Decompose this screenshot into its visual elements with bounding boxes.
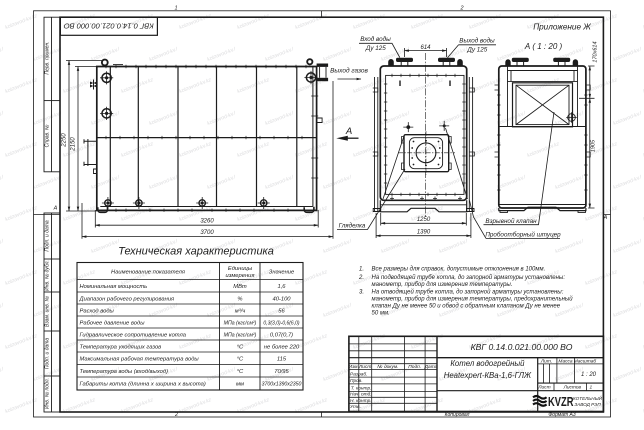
svg-text:Т. контр.: Т. контр. [351,385,372,391]
svg-text:Подп. и дата: Подп. и дата [45,338,51,370]
svg-text:0,07(0,7): 0,07(0,7) [270,332,293,338]
svg-text:Значение: Значение [269,269,295,275]
svg-text:1 : 20: 1 : 20 [581,372,597,378]
svg-text:2: 2 [459,6,463,12]
svg-text:Диапазон рабочего регулировани: Диапазон рабочего регулирования [79,296,175,302]
svg-text:КОТЕЛЬНЫЙ: КОТЕЛЬНЫЙ [573,394,603,401]
svg-text:Гидравлическое сопротивление к: Гидравлическое сопротивление котла [80,332,187,338]
svg-text:1905: 1905 [591,139,597,152]
svg-text:1250: 1250 [417,217,431,223]
svg-text:Взрывной клапан: Взрывной клапан [485,217,537,225]
svg-text:м³/ч: м³/ч [235,308,246,314]
svg-text:манометр, прибор для измерения: манометр, прибор для измерения температу… [372,295,574,302]
svg-text:клапан Ду не менее 50 и обвод: клапан Ду не менее 50 и обвод с обратным… [372,303,561,309]
svg-text:3.: 3. [359,289,364,295]
svg-text:Н. контр.: Н. контр. [350,398,372,404]
svg-text:На отводящей трубе котла, до з: На отводящей трубе котла, до запорной ар… [372,288,564,295]
svg-text:Температура воды (вход/выход): Температура воды (вход/выход) [80,369,169,375]
svg-text:не более 220: не более 220 [264,344,300,350]
svg-text:Выход воды: Выход воды [459,36,495,44]
svg-text:Наименование показателя: Наименование показателя [111,269,185,275]
svg-text:Перв. примен.: Перв. примен. [45,41,51,74]
svg-text:Гляделка: Гляделка [339,222,366,230]
svg-text:Вход воды: Вход воды [360,35,391,43]
svg-text:МПа (кгс/см²): МПа (кгс/см²) [224,320,257,326]
svg-text:56: 56 [278,308,285,314]
svg-text:А: А [53,206,58,212]
svg-text:Утв.: Утв. [350,404,361,410]
svg-text:Котел водогрейный: Котел водогрейный [450,359,525,368]
svg-text:Дата: Дата [424,364,438,370]
svg-text:Разраб.: Разраб. [350,371,367,377]
svg-text:Максимальная рабочая температу: Максимальная рабочая температура воды [80,357,200,363]
svg-text:3700: 3700 [200,230,214,236]
svg-text:Рабочее давление воды: Рабочее давление воды [80,320,146,326]
svg-text:Пров.: Пров. [350,378,363,384]
svg-text:70/95: 70/95 [274,369,289,375]
svg-text:Инв. № подл.: Инв. № подл. [45,378,51,409]
svg-text:мм: мм [236,382,244,388]
svg-text:Номинальная мощность: Номинальная мощность [80,284,148,290]
svg-text:Взам. инв. №: Взам. инв. № [45,295,51,327]
svg-text:Изм.: Изм. [349,364,359,370]
svg-text:Справ. №: Справ. № [45,124,51,147]
svg-text:KVZR: KVZR [548,394,574,409]
svg-text:2250: 2250 [61,133,67,148]
svg-text:Подп. и дата: Подп. и дата [45,220,51,252]
svg-text:Подп.: Подп. [408,364,421,370]
svg-text:Температура уходящих газов: Температура уходящих газов [80,344,162,350]
svg-text:Расход воды: Расход воды [80,308,115,314]
svg-text:№ докум.: № докум. [377,364,398,370]
svg-text:измерения: измерения [225,273,254,279]
svg-text:°С: °С [237,344,244,350]
svg-text:1.: 1. [359,266,364,272]
svg-text:0,3(3,0)-0,6(6,0): 0,3(3,0)-0,6(6,0) [263,320,299,326]
svg-text:2150: 2150 [71,137,77,152]
svg-text:Пробоотборный штуцер: Пробоотборный штуцер [485,231,561,239]
svg-text:Габариты котла (длинна х ширин: Габариты котла (длинна х ширина х высота… [80,382,206,388]
svg-text:Лист: Лист [537,385,550,391]
svg-text:115: 115 [277,357,287,363]
svg-text:Лит.: Лит. [540,358,552,364]
svg-text:Масштаб: Масштаб [574,358,597,364]
svg-text:1390: 1390 [417,229,431,235]
svg-text:Копировал: Копировал [445,412,470,418]
svg-text:Все размеры для справок, допус: Все размеры для справок, допустимые откл… [372,266,546,272]
svg-text:40-100: 40-100 [272,296,291,302]
svg-text:Ду 125: Ду 125 [466,46,487,53]
svg-text:Формат А3: Формат А3 [548,412,576,418]
svg-text:614: 614 [420,45,431,51]
svg-text:Выход газов: Выход газов [330,67,368,75]
svg-text:50 мм.: 50 мм. [372,310,390,316]
svg-text:2.: 2. [358,275,364,281]
svg-text:1: 1 [174,6,177,12]
svg-text:Нач. отд.: Нач. отд. [350,392,372,398]
svg-text:Heatexpert-КВа-1,6-ГЛЖ: Heatexpert-КВа-1,6-ГЛЖ [444,371,532,380]
svg-text:3260: 3260 [200,219,214,225]
svg-text:Ду 125: Ду 125 [365,45,386,52]
svg-text:На подводящей трубе котла, до: На подводящей трубе котла, до запорной а… [372,274,566,281]
svg-text:1: 1 [589,385,592,391]
svg-text:Инв. № дубл.: Инв. № дубл. [45,260,51,291]
svg-text:°С: °С [237,357,244,363]
svg-text:А: А [345,126,352,137]
svg-text:МВт: МВт [233,284,247,290]
svg-text:А ( 1 : 20 ): А ( 1 : 20 ) [524,42,563,51]
svg-text:Лист: Лист [358,364,371,370]
svg-text:Единицы: Единицы [228,266,253,272]
svg-text:Техническая характеристика: Техническая характеристика [118,246,274,258]
svg-text:%: % [237,296,242,302]
svg-text:МПа (кгс/см²): МПа (кгс/см²) [224,332,257,338]
svg-text:КВГ 0.14.0.021.00.000 ВО: КВГ 0.14.0.021.00.000 ВО [64,22,154,31]
svg-text:3700х1390х2350: 3700х1390х2350 [262,382,302,388]
svg-text:Листов: Листов [563,385,582,391]
svg-text:ЗАВОД РЭП: ЗАВОД РЭП [574,402,601,407]
svg-text:170х614: 170х614 [593,41,599,62]
svg-text:2: 2 [174,412,178,418]
svg-text:А: А [603,215,608,221]
svg-text:°С: °С [237,369,244,375]
svg-text:Приложение Ж: Приложение Ж [533,22,591,31]
svg-text:Масса: Масса [558,358,573,364]
svg-text:КВГ 0.14.0.021.00.000 ВО: КВГ 0.14.0.021.00.000 ВО [471,342,573,352]
svg-text:1,6: 1,6 [277,284,286,290]
svg-text:манометр, прибор для измерения: манометр, прибор для измерения температу… [372,282,513,288]
